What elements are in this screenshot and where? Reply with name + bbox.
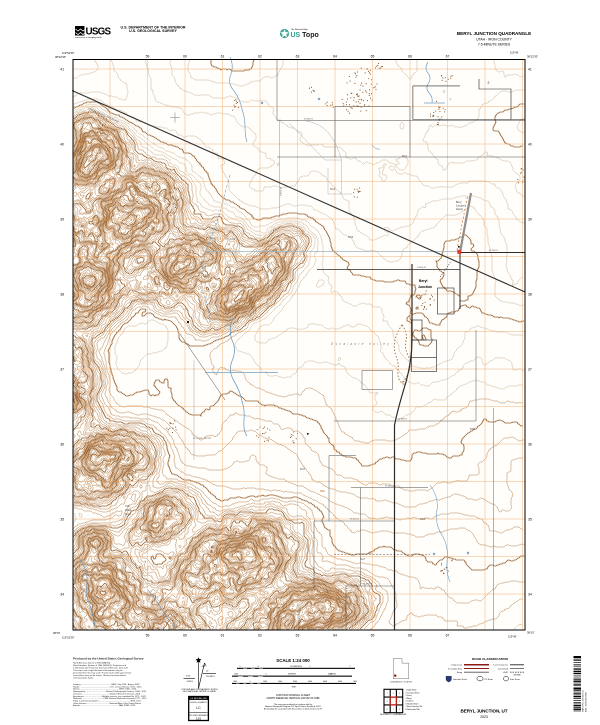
svg-text:4000: 4000	[308, 681, 312, 683]
svg-text:65: 65	[371, 634, 375, 638]
svg-text:LC: LC	[196, 706, 201, 710]
svg-text:ISBN 978-1-398-02712-1: ISBN 978-1-398-02712-1	[583, 689, 585, 712]
svg-text:3000: 3000	[293, 681, 297, 683]
svg-text:5000: 5000	[323, 681, 327, 683]
svg-text:38°22′30″: 38°22′30″	[55, 55, 66, 59]
svg-text:W 3800 N: W 3800 N	[363, 584, 372, 586]
svg-text:W 7000 N: W 7000 N	[489, 250, 498, 252]
svg-text:11°: 11°	[206, 671, 209, 673]
svg-text:38: 38	[528, 293, 532, 297]
svg-text:41: 41	[60, 68, 64, 72]
svg-text:SCALE 1:24 000: SCALE 1:24 000	[276, 658, 310, 663]
svg-text:38°22′30″: 38°22′30″	[527, 55, 538, 59]
svg-text:5 Latimer: 5 Latimer	[406, 700, 414, 703]
svg-text:2: 2	[350, 666, 351, 668]
svg-text:64: 64	[333, 634, 337, 638]
svg-text:63: 63	[296, 634, 300, 638]
svg-text:6 Hamlin Wash: 6 Hamlin Wash	[406, 704, 419, 706]
svg-text:8 Newcastle NW: 8 Newcastle NW	[406, 708, 420, 711]
svg-text:ADJOINING 7.5′ QUADRANGLES: ADJOINING 7.5′ QUADRANGLES	[380, 713, 407, 716]
svg-text:USGS: USGS	[86, 26, 112, 37]
svg-text:Local Road: Local Road	[498, 668, 509, 670]
svg-text:US Route: US Route	[485, 679, 494, 681]
svg-text:67: 67	[446, 55, 450, 59]
svg-text:NORTH AMERICAN VERTICAL DATUM: NORTH AMERICAN VERTICAL DATUM OF 1988	[267, 697, 320, 700]
svg-text:W 4000 N: W 4000 N	[304, 119, 313, 121]
svg-text:7.5-MINUTE SERIES: 7.5-MINUTE SERIES	[478, 42, 511, 46]
svg-text:7000: 7000	[353, 681, 357, 683]
svg-text:Junction: Junction	[418, 285, 432, 289]
svg-text:37: 37	[60, 368, 64, 372]
svg-text:66: 66	[408, 634, 412, 638]
svg-text:The National Map: The National Map	[291, 28, 309, 31]
svg-text:A metadata file associated wit: A metadata file associated with this pro…	[264, 708, 323, 711]
svg-text:Ramp: Ramp	[457, 672, 463, 674]
svg-text:5113: 5113	[300, 469, 306, 471]
svg-text:2000: 2000	[328, 674, 332, 676]
svg-text:Secondary Hwy: Secondary Hwy	[448, 668, 463, 670]
svg-text:1: 1	[310, 666, 311, 668]
svg-text:KILOMETERS: KILOMETERS	[290, 666, 302, 668]
svg-text:5091: 5091	[470, 429, 476, 431]
svg-text:UTAH - IRON COUNTY: UTAH - IRON COUNTY	[476, 37, 512, 41]
svg-text:59: 59	[146, 55, 150, 59]
svg-text:12S: 12S	[196, 717, 201, 721]
svg-text:113°52′30″: 113°52′30″	[62, 636, 74, 640]
svg-text:61: 61	[221, 55, 225, 59]
svg-text:BERYL JUNCTION QUADRANGLE: BERYL JUNCTION QUADRANGLE	[457, 31, 531, 36]
svg-text:METERS: METERS	[288, 674, 296, 676]
svg-text:World Geodetic System of 1984: World Geodetic System of 1984 (WGS84). P…	[73, 664, 127, 667]
svg-text:This map is not a legal docume: This map is not a legal document. Bounda…	[73, 669, 123, 672]
svg-text:US Topo: US Topo	[291, 32, 319, 39]
svg-text:QUADRANGLE LOCATION: QUADRANGLE LOCATION	[390, 681, 413, 684]
svg-text:N 4800 W: N 4800 W	[417, 267, 426, 269]
svg-text:1 Table Butte: 1 Table Butte	[406, 689, 417, 692]
svg-text:62: 62	[258, 55, 262, 59]
svg-text:WB GBB: WB GBB	[514, 674, 522, 676]
svg-text:NSN. 7643014674080: NSN. 7643014674080	[586, 691, 588, 712]
svg-text:62: 62	[258, 634, 262, 638]
svg-text:Junction: Junction	[456, 205, 465, 208]
svg-text:60: 60	[183, 634, 187, 638]
svg-text:Airports......................: Airports................................…	[73, 704, 136, 707]
svg-text:65: 65	[371, 55, 375, 59]
svg-text:35: 35	[528, 518, 532, 522]
svg-text:Local Connector: Local Connector	[493, 665, 508, 667]
svg-text:5310: 5310	[230, 239, 236, 241]
svg-text:0: 0	[250, 681, 251, 683]
svg-text:3 Lund: 3 Lund	[406, 695, 412, 697]
svg-text:2023: 2023	[480, 715, 488, 719]
svg-text:5095: 5095	[420, 519, 426, 521]
svg-text:4WD: 4WD	[503, 672, 508, 674]
svg-text:5096: 5096	[348, 237, 354, 239]
svg-text:67: 67	[446, 634, 450, 638]
svg-text:7 Beryl Junction SE: 7 Beryl Junction SE	[406, 705, 423, 708]
svg-text:39: 39	[60, 218, 64, 222]
svg-text:41: 41	[528, 68, 532, 72]
svg-text:U.S. GEOLOGICAL SURVEY: U.S. GEOLOGICAL SURVEY	[129, 29, 177, 33]
svg-text:N 8000 W: N 8000 W	[281, 187, 283, 196]
svg-text:5107: 5107	[360, 559, 366, 561]
svg-text:64: 64	[333, 55, 337, 59]
svg-text:113°45′: 113°45′	[510, 51, 519, 55]
svg-text:4 Beryl: 4 Beryl	[406, 697, 412, 700]
svg-text:196 MILS: 196 MILS	[206, 676, 215, 678]
svg-text:113°45′: 113°45′	[508, 635, 517, 639]
svg-text:.5: .5	[257, 666, 259, 668]
svg-text:38°15′: 38°15′	[527, 631, 535, 635]
svg-text:ROAD CLASSIFICATION: ROAD CLASSIFICATION	[472, 657, 508, 661]
svg-text:entering private lands.: entering private lands.	[73, 677, 94, 680]
svg-text:Beryl: Beryl	[456, 201, 462, 204]
svg-text:66: 66	[408, 55, 412, 59]
svg-text:2: 2	[488, 81, 490, 85]
svg-text:1000: 1000	[263, 681, 267, 683]
svg-text:Wash: Wash	[125, 509, 132, 512]
svg-text:DECLINATION AT CENTER OF SHEET: DECLINATION AT CENTER OF SHEET	[183, 690, 217, 693]
svg-text:38°15′: 38°15′	[53, 631, 61, 635]
svg-text:1000: 1000	[234, 674, 238, 676]
svg-text:4 MILS: 4 MILS	[187, 681, 194, 683]
svg-text:611: 611	[320, 489, 325, 493]
svg-text:6000: 6000	[338, 681, 342, 683]
svg-text:Airport: Airport	[456, 208, 463, 211]
svg-text:0°23′: 0°23′	[186, 676, 191, 678]
svg-text:0: 0	[266, 674, 267, 676]
svg-text:U.S. NATIONAL GRID: U.S. NATIONAL GRID	[190, 697, 207, 700]
svg-text:39: 39	[528, 218, 532, 222]
svg-text:reservations may not be shown.: reservations may not be shown. Obtain pe…	[73, 674, 127, 677]
svg-text:36: 36	[60, 443, 64, 447]
svg-text:Fountain Bench: Fountain Bench	[193, 436, 212, 440]
svg-text:W 4400 N: W 4400 N	[385, 486, 394, 488]
svg-text:W 4200 N: W 4200 N	[350, 519, 359, 521]
svg-text:1: 1	[240, 666, 241, 668]
svg-text:Beryl: Beryl	[419, 279, 428, 283]
svg-text:35: 35	[60, 518, 64, 522]
svg-text:59: 59	[146, 634, 150, 638]
svg-text:34: 34	[60, 593, 64, 597]
svg-text:113°52′30″: 113°52′30″	[62, 51, 74, 55]
svg-text:63: 63	[296, 55, 300, 59]
svg-text:36: 36	[528, 443, 532, 447]
svg-text:Expressway: Expressway	[451, 665, 462, 667]
svg-text:5100: 5100	[330, 189, 336, 191]
svg-text:Interstate Route: Interstate Route	[453, 679, 467, 681]
svg-text:Produced by the United States: Produced by the United States Geological…	[73, 657, 144, 661]
svg-text:Trail: Trail	[125, 505, 130, 508]
svg-text:38: 38	[60, 293, 64, 297]
svg-text:61: 61	[221, 634, 225, 638]
svg-text:Escalante Valley: Escalante Valley	[331, 342, 391, 346]
svg-text:BERYL JUNCTION, UT: BERYL JUNCTION, UT	[461, 708, 508, 713]
svg-text:1000: 1000	[233, 681, 237, 683]
svg-text:60: 60	[183, 55, 187, 59]
svg-text:science for a changing world: science for a changing world	[75, 36, 102, 39]
svg-text:40: 40	[60, 143, 64, 147]
svg-text:W 4800 N: W 4800 N	[398, 419, 407, 421]
svg-text:37: 37	[528, 368, 532, 372]
svg-text:5102: 5102	[402, 156, 408, 158]
svg-text:Spgs: Spgs	[125, 513, 131, 516]
svg-text:State Route: State Route	[510, 679, 520, 681]
svg-text:2000: 2000	[278, 681, 282, 683]
svg-text:34: 34	[528, 593, 532, 597]
svg-text:4WD: 4WD	[438, 119, 443, 121]
svg-text:40: 40	[528, 143, 532, 147]
svg-text:2 Jackson Wash: 2 Jackson Wash	[406, 693, 420, 695]
